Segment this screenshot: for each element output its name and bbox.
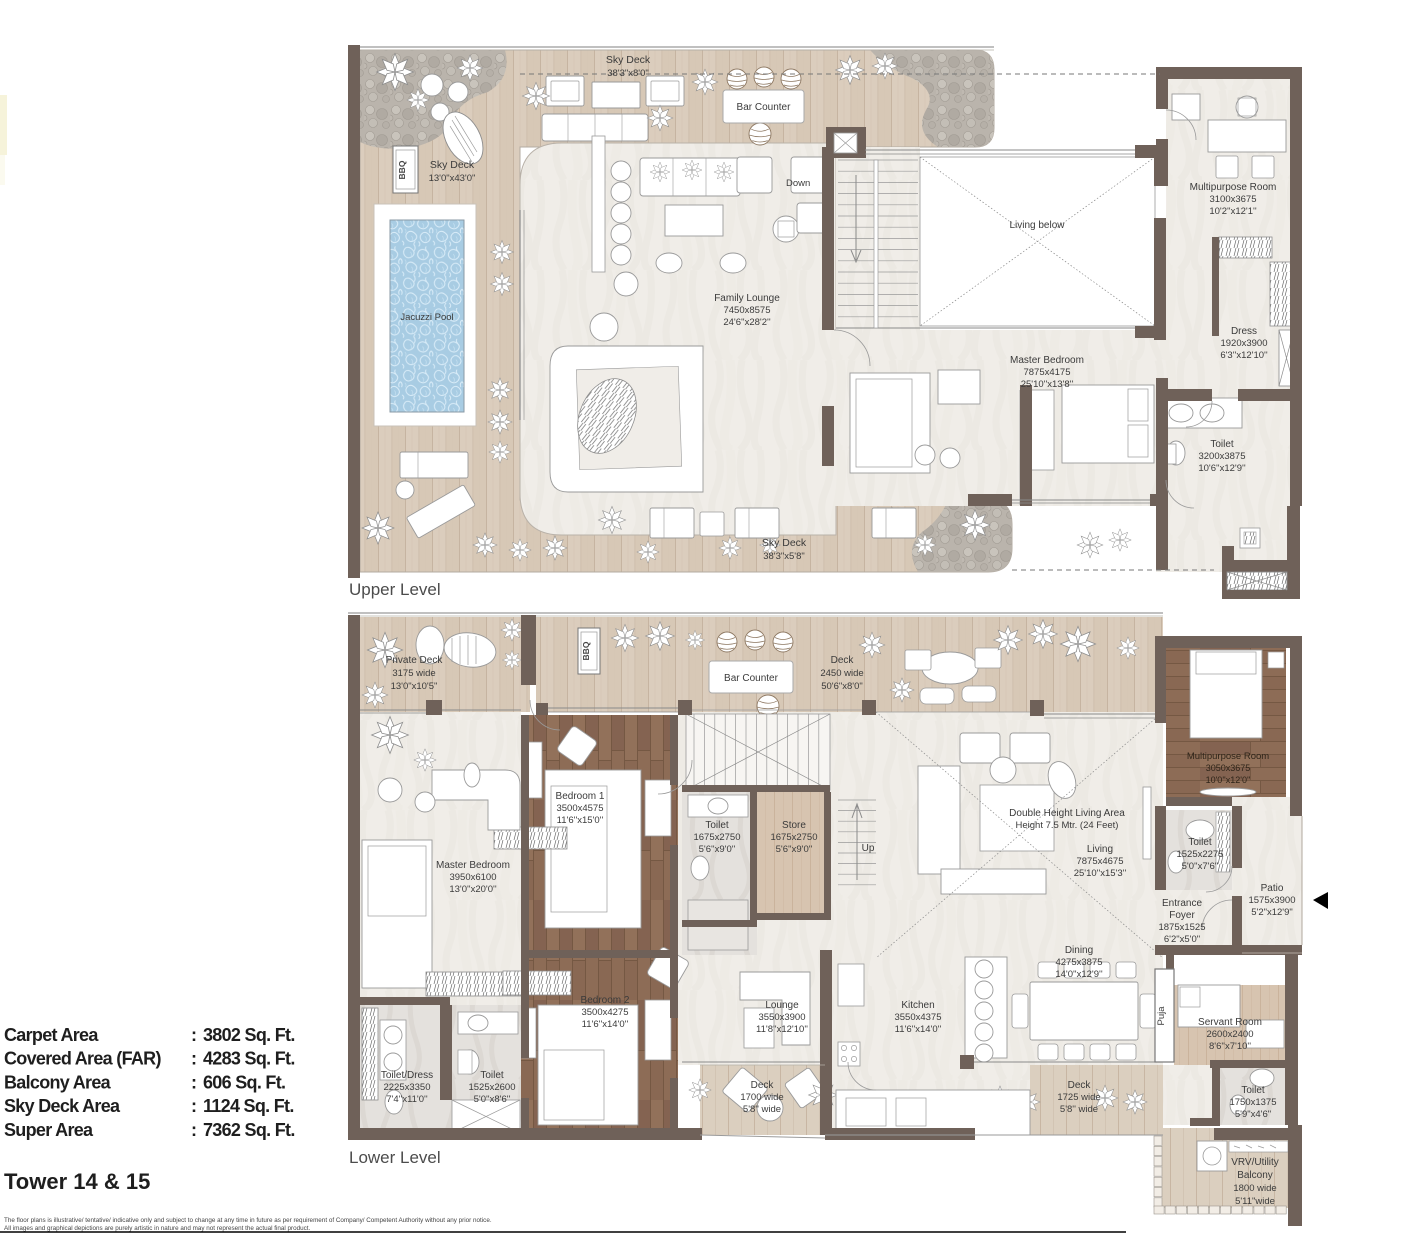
svg-text:38'3"x8'0": 38'3"x8'0" <box>607 68 649 79</box>
svg-text:5'9"x4'6": 5'9"x4'6" <box>1235 1109 1271 1120</box>
svg-text:Deck: Deck <box>1068 1080 1092 1091</box>
svg-text:1875x1525: 1875x1525 <box>1158 922 1205 933</box>
svg-text:5'0''x7'6'': 5'0''x7'6'' <box>1182 861 1219 872</box>
svg-text:Toilet/Dress: Toilet/Dress <box>381 1070 433 1081</box>
svg-text:Multipurpose Room: Multipurpose Room <box>1187 751 1269 762</box>
svg-text:Tower 14 & 15: Tower 14 & 15 <box>4 1169 150 1194</box>
svg-text:Private Deck: Private Deck <box>386 655 444 666</box>
svg-text:5'8'' wide: 5'8'' wide <box>1060 1104 1098 1115</box>
svg-text:11'6''x14'0'': 11'6''x14'0'' <box>895 1024 942 1035</box>
svg-text:Super Area: Super Area <box>4 1120 94 1140</box>
svg-text:5'2"x12'9": 5'2"x12'9" <box>1251 907 1293 918</box>
svg-text:Bar Counter: Bar Counter <box>724 673 779 684</box>
svg-text:1675x2750: 1675x2750 <box>770 832 817 843</box>
svg-text:Height 7.5 Mtr. (24 Feet): Height 7.5 Mtr. (24 Feet) <box>1016 820 1119 831</box>
svg-text:2600x2400: 2600x2400 <box>1206 1029 1253 1040</box>
svg-text:10'0''x12'0'': 10'0''x12'0'' <box>1206 775 1251 785</box>
svg-text:1525x2600: 1525x2600 <box>468 1082 515 1093</box>
svg-text:Sky Deck: Sky Deck <box>430 159 475 171</box>
svg-text:5'6''x9'0'': 5'6''x9'0'' <box>776 844 813 855</box>
svg-text:2225x3350: 2225x3350 <box>383 1082 430 1093</box>
svg-text:5'0''x8'6'': 5'0''x8'6'' <box>474 1094 511 1105</box>
svg-text:3175 wide: 3175 wide <box>392 668 435 679</box>
svg-text:Up: Up <box>862 843 875 854</box>
svg-text:Double Height Living Area: Double Height Living Area <box>1009 808 1125 819</box>
svg-text:Lounge: Lounge <box>765 1000 799 1011</box>
svg-text:Master Bedroom: Master Bedroom <box>1010 355 1084 366</box>
svg-text:13'0"x43'0": 13'0"x43'0" <box>429 173 476 184</box>
svg-text:1700 wide: 1700 wide <box>740 1092 783 1103</box>
svg-text:Dining: Dining <box>1065 945 1093 956</box>
svg-text:6'2"x5'0": 6'2"x5'0" <box>1164 934 1200 945</box>
svg-text:Bedroom 1: Bedroom 1 <box>556 791 605 802</box>
svg-text:1750x1375: 1750x1375 <box>1229 1097 1276 1108</box>
svg-text:1575x3900: 1575x3900 <box>1248 895 1295 906</box>
svg-text:3950x6100: 3950x6100 <box>449 872 496 883</box>
svg-text:Servant Room: Servant Room <box>1198 1017 1262 1028</box>
svg-text::: : <box>191 1120 197 1140</box>
svg-text:1675x2750: 1675x2750 <box>693 832 740 843</box>
svg-text:Balcony: Balcony <box>1237 1170 1273 1181</box>
svg-text:3050x3675: 3050x3675 <box>1206 763 1251 773</box>
svg-text:VRV/Utility: VRV/Utility <box>1231 1157 1279 1168</box>
svg-text:Bar Counter: Bar Counter <box>737 102 792 113</box>
svg-text:7875x4175: 7875x4175 <box>1023 367 1070 378</box>
svg-text:Master Bedroom: Master Bedroom <box>436 860 510 871</box>
svg-text:3802 Sq. Ft.: 3802 Sq. Ft. <box>203 1025 295 1045</box>
svg-text:Bedroom 2: Bedroom 2 <box>581 995 630 1006</box>
svg-text:1920x3900: 1920x3900 <box>1220 338 1267 349</box>
svg-text:5'11"wide: 5'11"wide <box>1235 1196 1275 1207</box>
svg-text:38'3"x5'8": 38'3"x5'8" <box>763 551 805 562</box>
svg-text:3550x3900: 3550x3900 <box>758 1012 805 1023</box>
svg-text:Living: Living <box>1087 844 1113 855</box>
svg-text:25'10''x15'3'': 25'10''x15'3'' <box>1074 868 1127 879</box>
svg-text:1725 wide: 1725 wide <box>1057 1092 1100 1103</box>
svg-text:14'0''x12'9'': 14'0''x12'9'' <box>1055 969 1103 980</box>
svg-text::: : <box>191 1049 197 1069</box>
svg-text:Toilet: Toilet <box>1210 439 1234 450</box>
svg-text:Covered Area (FAR): Covered Area (FAR) <box>4 1049 161 1069</box>
svg-text:BBQ: BBQ <box>581 641 591 660</box>
svg-text::: : <box>191 1025 197 1045</box>
svg-text:Entrance: Entrance <box>1162 898 1202 909</box>
svg-text:Lower Level: Lower Level <box>349 1148 441 1167</box>
svg-text:Puja: Puja <box>1156 1006 1167 1026</box>
svg-text::: : <box>191 1096 197 1116</box>
svg-text:Sky Deck: Sky Deck <box>762 537 807 549</box>
svg-text:11'6''x15'0'': 11'6''x15'0'' <box>557 815 604 826</box>
svg-text:6'3''x12'10'': 6'3''x12'10'' <box>1220 350 1268 361</box>
svg-text:3500x4575: 3500x4575 <box>556 803 603 814</box>
svg-text:50'6"x8'0": 50'6"x8'0" <box>821 681 863 692</box>
svg-text:Kitchen: Kitchen <box>901 1000 934 1011</box>
svg-text:10'2''x12'1'': 10'2''x12'1'' <box>1209 206 1257 217</box>
svg-text:4283 Sq. Ft.: 4283 Sq. Ft. <box>203 1049 295 1069</box>
svg-text:24'6''x28'2'': 24'6''x28'2'' <box>723 317 771 328</box>
svg-text:1525x2275: 1525x2275 <box>1176 849 1223 860</box>
svg-text:25'10''x13'8'': 25'10''x13'8'' <box>1021 379 1074 390</box>
svg-text:1124 Sq. Ft.: 1124 Sq. Ft. <box>203 1096 294 1116</box>
svg-text:Sky Deck Area: Sky Deck Area <box>4 1096 121 1116</box>
svg-text:Carpet Area: Carpet Area <box>4 1025 99 1045</box>
svg-text:2450 wide: 2450 wide <box>820 668 863 679</box>
svg-text:Toilet: Toilet <box>480 1070 504 1081</box>
svg-text:3200x3875: 3200x3875 <box>1198 451 1245 462</box>
svg-text:Down: Down <box>786 178 810 189</box>
svg-text:Deck: Deck <box>831 655 855 666</box>
svg-text:Multipurpose Room: Multipurpose Room <box>1190 182 1277 193</box>
svg-text:Sky Deck: Sky Deck <box>606 54 651 66</box>
svg-text:Upper Level: Upper Level <box>349 580 441 599</box>
svg-text:8'6''x7'10'': 8'6''x7'10'' <box>1209 1041 1251 1052</box>
svg-text:11'6''x14'0'': 11'6''x14'0'' <box>582 1019 629 1030</box>
svg-text:Jacuzzi Pool: Jacuzzi Pool <box>400 312 453 323</box>
svg-text:3100x3675: 3100x3675 <box>1209 194 1256 205</box>
svg-text:Dress: Dress <box>1231 326 1257 337</box>
svg-text:BBQ: BBQ <box>397 160 407 179</box>
svg-text:7450x8575: 7450x8575 <box>723 305 770 316</box>
svg-text:4275x3875: 4275x3875 <box>1055 957 1102 968</box>
svg-text:Toilet: Toilet <box>1241 1085 1265 1096</box>
svg-text:13'0"x10'5": 13'0"x10'5" <box>391 681 438 692</box>
svg-text:10'6''x12'9'': 10'6''x12'9'' <box>1198 463 1246 474</box>
svg-text:13'0''x20'0'': 13'0''x20'0'' <box>449 884 497 895</box>
svg-text:Family Lounge: Family Lounge <box>714 293 780 304</box>
svg-text:7'4''x11'0'': 7'4''x11'0'' <box>386 1094 428 1105</box>
svg-text:Toilet: Toilet <box>705 820 729 831</box>
svg-text:11'8''x12'10'': 11'8''x12'10'' <box>756 1024 808 1035</box>
svg-text:5'6''x9'0'': 5'6''x9'0'' <box>699 844 736 855</box>
svg-text:Balcony Area: Balcony Area <box>4 1072 112 1092</box>
svg-text:Toilet: Toilet <box>1188 837 1212 848</box>
svg-text:5'8'' wide: 5'8'' wide <box>743 1104 781 1115</box>
svg-text:Patio: Patio <box>1261 883 1284 894</box>
svg-text:Living below: Living below <box>1009 220 1065 231</box>
svg-text:Foyer: Foyer <box>1169 910 1195 921</box>
svg-text:Deck: Deck <box>751 1080 775 1091</box>
svg-text::: : <box>191 1072 197 1092</box>
svg-text:3500x4275: 3500x4275 <box>581 1007 628 1018</box>
svg-text:1800 wide: 1800 wide <box>1233 1183 1276 1194</box>
svg-text:606 Sq. Ft.: 606 Sq. Ft. <box>203 1072 285 1092</box>
svg-text:7875x4675: 7875x4675 <box>1076 856 1123 867</box>
svg-text:All images and graphical depic: All images and graphical depictions are … <box>4 1225 311 1232</box>
svg-text:Store: Store <box>782 820 806 831</box>
svg-text:The floor plans is illustrativ: The floor plans is illustrative/ tentati… <box>4 1217 492 1224</box>
svg-text:3550x4375: 3550x4375 <box>894 1012 941 1023</box>
svg-text:7362 Sq. Ft.: 7362 Sq. Ft. <box>203 1120 295 1140</box>
